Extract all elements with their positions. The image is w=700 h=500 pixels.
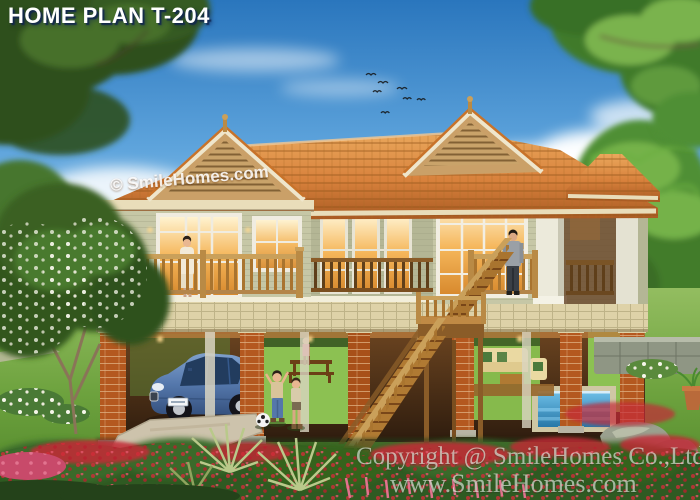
page-title: HOME PLAN T-204 bbox=[8, 3, 210, 29]
wall-sconce bbox=[246, 228, 251, 233]
copyright-line: Copyright @ SmileHomes Co.,Ltd bbox=[356, 443, 700, 471]
far-right-railing bbox=[566, 260, 614, 295]
stone-retaining-wall bbox=[594, 337, 700, 379]
wall-sconce bbox=[148, 228, 153, 233]
website-line: www.SmileHomes.com bbox=[390, 469, 637, 499]
architectural-rendering: HOME PLAN T-204 © SmileHomes.com Copyrig… bbox=[0, 0, 700, 500]
scene-illustration bbox=[0, 0, 700, 500]
